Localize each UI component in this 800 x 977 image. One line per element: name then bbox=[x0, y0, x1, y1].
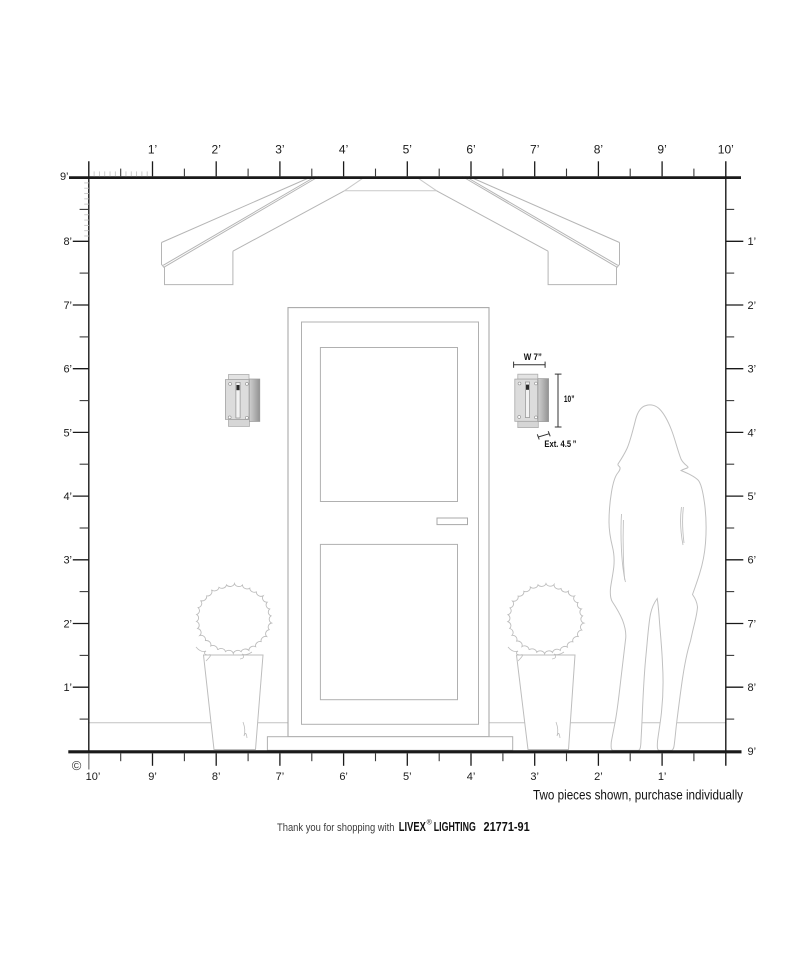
svg-text:W 7”: W 7” bbox=[524, 352, 542, 363]
svg-text:9’: 9’ bbox=[60, 171, 69, 183]
svg-text:4’: 4’ bbox=[339, 143, 348, 157]
svg-text:©: © bbox=[72, 758, 82, 773]
svg-text:Ext. 4.5 ”: Ext. 4.5 ” bbox=[544, 439, 576, 450]
svg-text:LIVEX: LIVEX bbox=[399, 820, 426, 834]
svg-text:1’: 1’ bbox=[748, 236, 757, 248]
svg-text:21771-91: 21771-91 bbox=[484, 820, 530, 834]
svg-text:LIGHTING: LIGHTING bbox=[434, 820, 476, 834]
svg-text:3’: 3’ bbox=[275, 143, 284, 157]
svg-text:2’: 2’ bbox=[212, 143, 221, 157]
svg-text:5’: 5’ bbox=[63, 427, 72, 439]
svg-text:10’: 10’ bbox=[86, 771, 101, 783]
svg-text:7’: 7’ bbox=[748, 618, 757, 630]
svg-text:10”: 10” bbox=[564, 394, 575, 405]
svg-text:1’: 1’ bbox=[63, 682, 72, 694]
svg-text:4’: 4’ bbox=[748, 427, 757, 439]
svg-text:6’: 6’ bbox=[748, 555, 757, 567]
svg-text:6’: 6’ bbox=[339, 771, 348, 783]
svg-text:®: ® bbox=[427, 819, 433, 827]
svg-text:3’: 3’ bbox=[748, 364, 757, 376]
svg-text:8’: 8’ bbox=[212, 771, 221, 783]
svg-text:2’: 2’ bbox=[748, 300, 757, 312]
svg-text:7’: 7’ bbox=[63, 300, 72, 312]
svg-text:8’: 8’ bbox=[594, 143, 603, 157]
svg-text:9’: 9’ bbox=[657, 143, 666, 157]
svg-text:3’: 3’ bbox=[63, 555, 72, 567]
svg-text:1’: 1’ bbox=[658, 771, 667, 783]
svg-text:2’: 2’ bbox=[594, 771, 603, 783]
svg-text:Thank you for shopping with: Thank you for shopping with bbox=[277, 822, 395, 834]
svg-text:8’: 8’ bbox=[63, 236, 72, 248]
svg-text:4’: 4’ bbox=[467, 771, 476, 783]
svg-text:2’: 2’ bbox=[63, 618, 72, 630]
svg-text:9’: 9’ bbox=[748, 746, 757, 758]
svg-text:1’: 1’ bbox=[148, 143, 157, 157]
svg-text:5’: 5’ bbox=[748, 491, 757, 503]
svg-text:6’: 6’ bbox=[63, 364, 72, 376]
svg-text:5’: 5’ bbox=[403, 771, 412, 783]
svg-text:6’: 6’ bbox=[466, 143, 475, 157]
svg-text:9’: 9’ bbox=[148, 771, 157, 783]
svg-text:4’: 4’ bbox=[63, 491, 72, 503]
svg-text:7’: 7’ bbox=[276, 771, 285, 783]
svg-text:8’: 8’ bbox=[748, 682, 757, 694]
svg-text:Two pieces shown, purchase ind: Two pieces shown, purchase individually bbox=[533, 788, 743, 803]
svg-text:5’: 5’ bbox=[403, 143, 412, 157]
svg-text:7’: 7’ bbox=[530, 143, 539, 157]
svg-text:3’: 3’ bbox=[530, 771, 539, 783]
svg-text:10’: 10’ bbox=[718, 143, 734, 157]
